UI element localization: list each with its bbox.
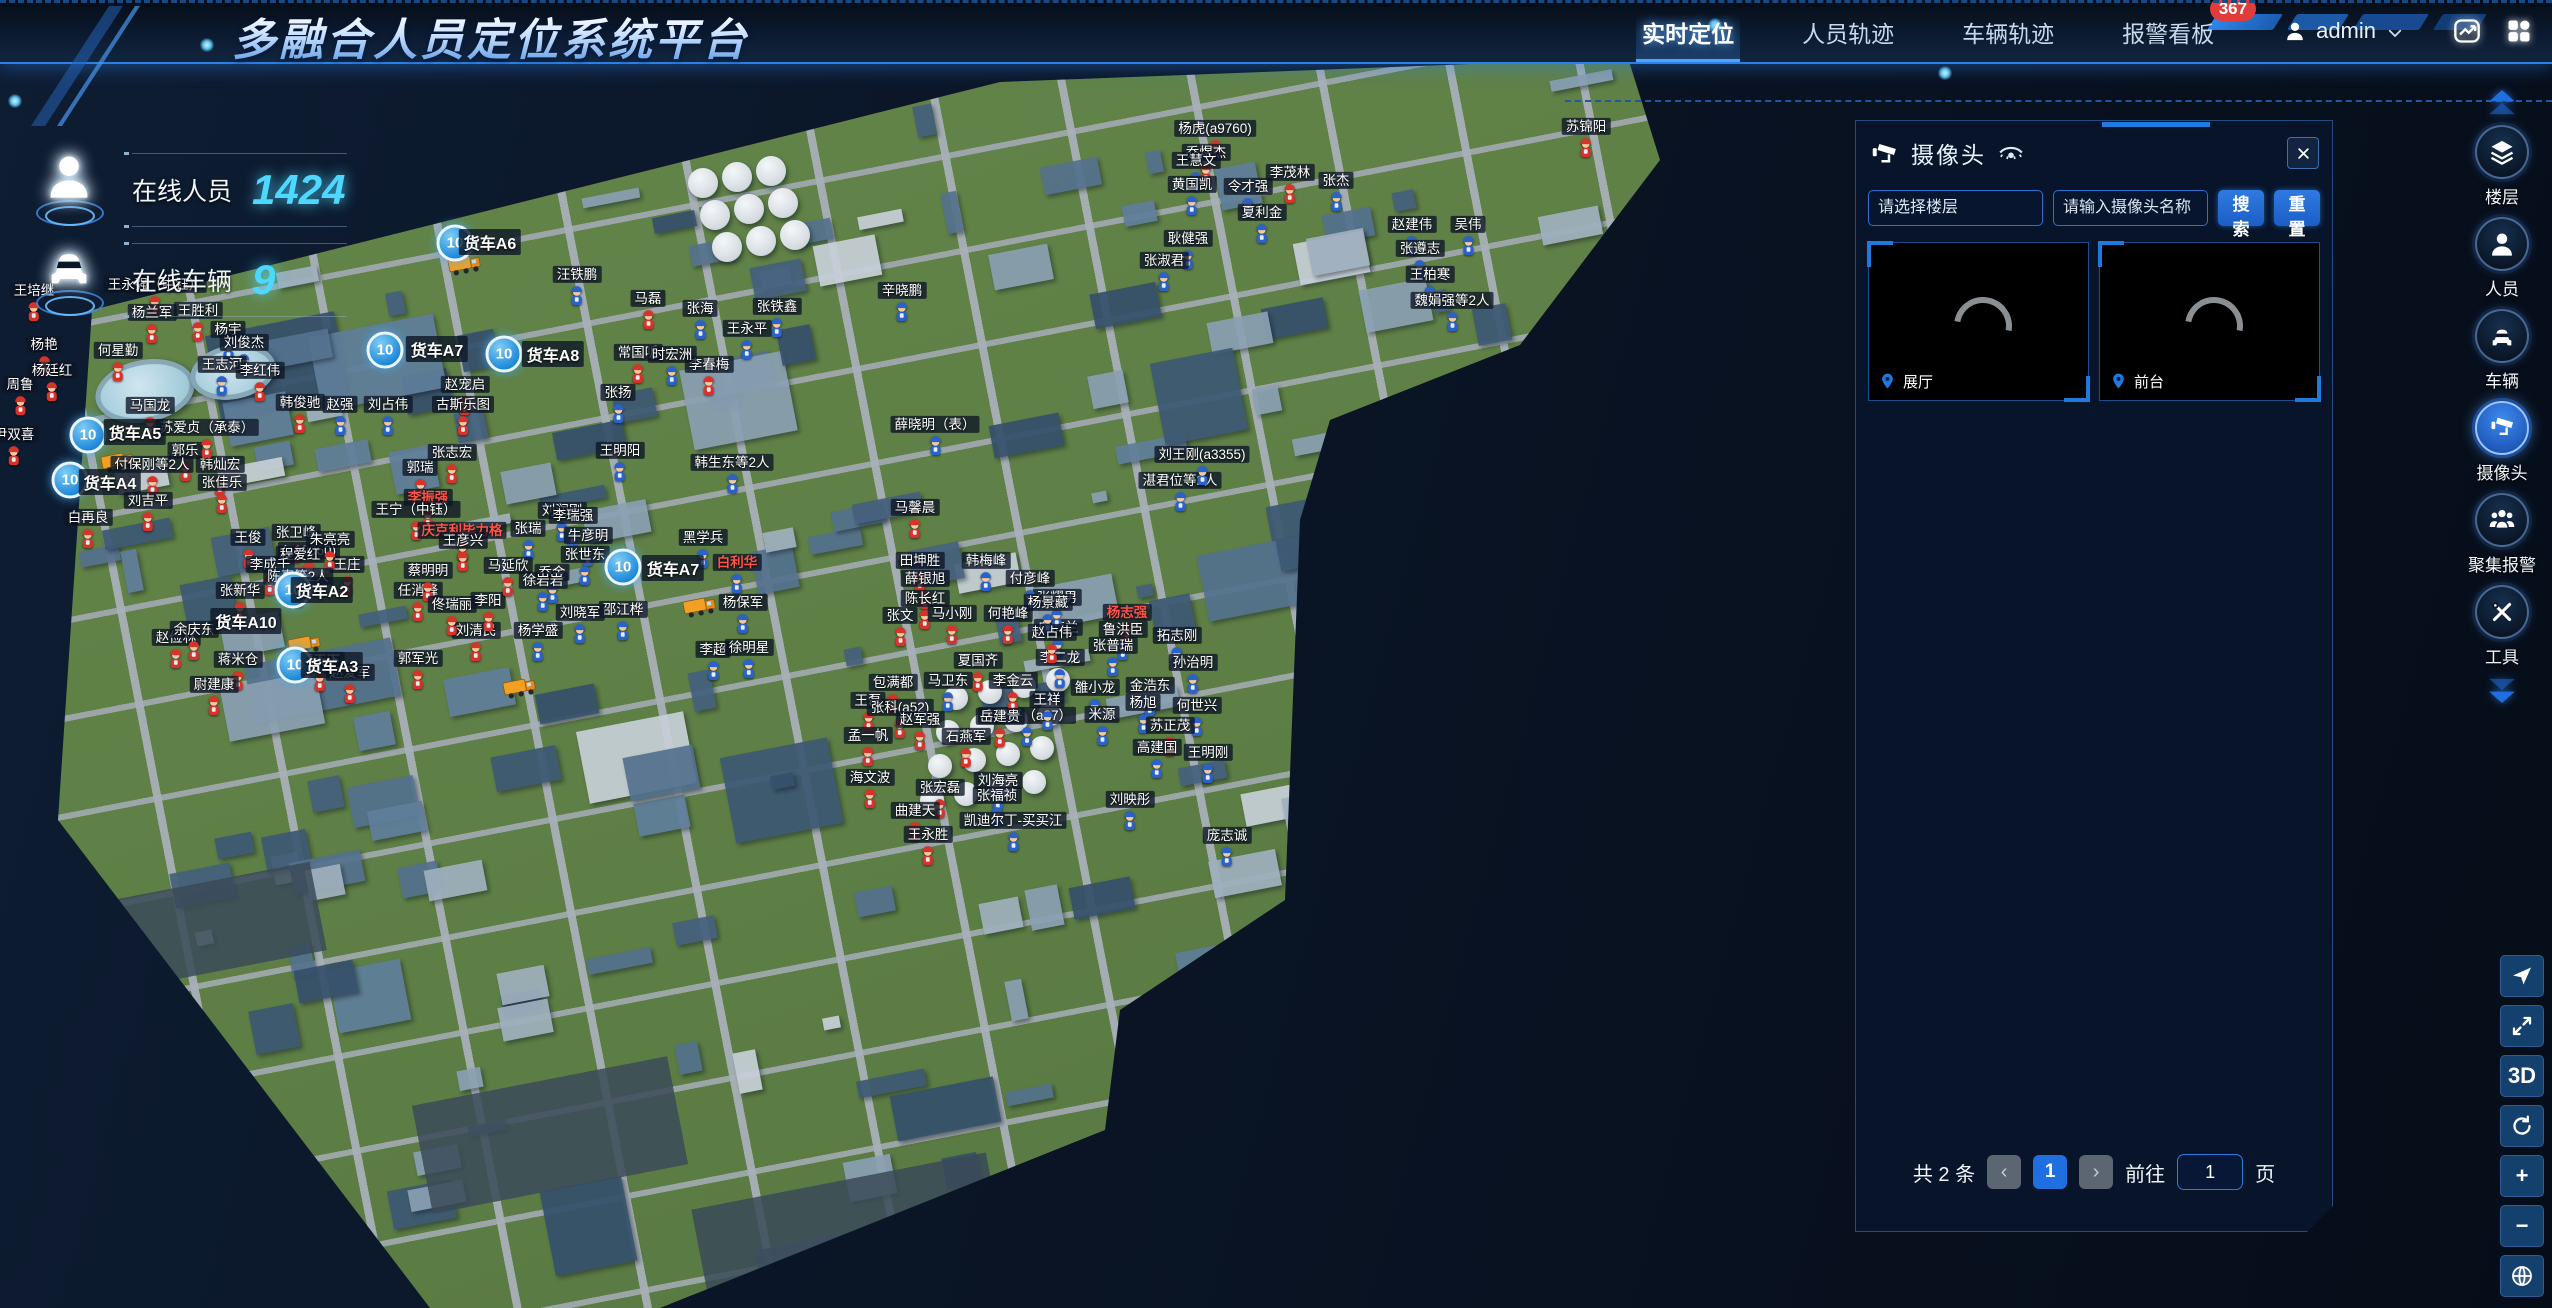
prev-page-button[interactable]: ‹ xyxy=(1987,1155,2021,1189)
truck-label[interactable]: 货车A7 xyxy=(642,555,704,581)
person-marker[interactable]: 白利华 xyxy=(713,554,762,594)
loading-spinner-icon xyxy=(2173,285,2254,366)
truck-label[interactable]: 货车A2 xyxy=(291,577,353,603)
current-page[interactable]: 1 xyxy=(2033,1155,2067,1189)
person-marker[interactable]: 尹双喜 xyxy=(0,426,38,466)
person-marker[interactable]: 苏爱贞（承泰） xyxy=(156,419,259,459)
person-name-label: 王柏寒 xyxy=(1406,266,1455,283)
person-marker[interactable]: 王永胜 xyxy=(904,826,953,866)
person-marker[interactable]: 刘占伟 xyxy=(364,396,413,436)
person-name-label: 刘占伟 xyxy=(364,396,413,413)
person-name-label: 马国龙 xyxy=(126,397,175,414)
sidebar-item-person[interactable]: 人员 xyxy=(2468,217,2536,300)
person-marker[interactable]: 何星勤 xyxy=(94,342,143,382)
goto-label: 前往 xyxy=(2125,1158,2165,1187)
person-name-label: 刘映彤 xyxy=(1106,791,1155,808)
person-name-label: 汪铁鹏 xyxy=(553,266,602,283)
person-name-label: 徐明星 xyxy=(725,639,774,656)
glow-dot xyxy=(1938,66,1952,80)
building xyxy=(1549,69,1613,92)
person-name-label: 韩梅峰 xyxy=(962,552,1011,569)
person-marker[interactable]: 赵占伟 xyxy=(1028,624,1077,664)
camera-search-row: 搜索 重置 xyxy=(1855,180,2333,230)
nav-tabs: 实时定位人员轨迹车辆轨迹报警看板367 xyxy=(1636,1,2220,62)
person-name-label: 令才强 xyxy=(1224,178,1273,195)
storage-tank xyxy=(1022,770,1046,794)
person-marker[interactable]: 张佳乐 xyxy=(198,474,247,514)
building xyxy=(675,1041,703,1075)
person-name-label: 王明刚 xyxy=(1184,744,1233,761)
person-name-label: 马磊 xyxy=(631,290,666,307)
person-name-label: 拓志刚 xyxy=(1153,627,1202,644)
person-name-label: 曲建天 xyxy=(891,802,940,819)
scroll-up-icon[interactable] xyxy=(2485,90,2519,116)
person-name-label: 何艳峰 xyxy=(984,605,1033,622)
person-name-label: 赵强 xyxy=(323,396,358,413)
person-marker[interactable]: 米源 xyxy=(1085,706,1120,746)
sidebar-item-label: 车辆 xyxy=(2485,367,2519,392)
person-name-label: 白再良 xyxy=(64,509,113,526)
camera-panel-header: 摄像头 xyxy=(1855,120,2333,180)
sidebar-item-label: 工具 xyxy=(2485,643,2519,668)
globe-button[interactable] xyxy=(2500,1255,2544,1297)
building xyxy=(1092,491,1109,504)
building xyxy=(1538,205,1603,245)
person-icon xyxy=(30,148,108,232)
person-marker[interactable]: 王永平 xyxy=(723,320,772,360)
floor-select-input[interactable] xyxy=(1868,190,2043,226)
orbit-button[interactable] xyxy=(2500,1105,2544,1147)
person-marker[interactable]: 朱亮亮 xyxy=(306,531,355,571)
building xyxy=(1175,941,1243,990)
person-name-label: 王明阳 xyxy=(596,442,645,459)
sidebar-item-label: 摄像头 xyxy=(2477,459,2528,484)
building xyxy=(1121,200,1158,227)
camera-feed-name: 前台 xyxy=(2134,371,2164,392)
person-marker[interactable]: 凯迪尔丁-买买江 xyxy=(960,812,1067,852)
page-unit-label: 页 xyxy=(2255,1158,2275,1187)
person-marker[interactable]: 韩俊驰 xyxy=(276,394,325,434)
person-marker[interactable]: 魏娟强等2人 xyxy=(1410,292,1493,332)
person-marker[interactable]: 徐明星 xyxy=(725,639,774,679)
dashboard-chart-button[interactable] xyxy=(2448,15,2486,47)
person-name-label: 李金云 xyxy=(989,672,1038,689)
goto-page-input[interactable] xyxy=(2177,1154,2243,1190)
person-name-label: 马馨晨 xyxy=(891,499,940,516)
search-button[interactable]: 搜索 xyxy=(2218,190,2264,226)
person-name-label: 刘俊杰 xyxy=(220,334,269,351)
person-name-label: 古斯乐图 xyxy=(432,396,494,413)
truck-label[interactable]: 货车A10 xyxy=(210,608,281,634)
building xyxy=(912,103,936,137)
alarm-count-badge: 367 xyxy=(2210,0,2256,21)
person-name-label: 赵建伟 xyxy=(1388,216,1437,233)
orbit-icon xyxy=(2510,1114,2534,1138)
person-name-label: 付彦峰 xyxy=(1006,570,1055,587)
location-pin-icon xyxy=(2110,370,2127,392)
online-personnel-stat: 在线人员 1424 xyxy=(30,148,347,232)
storage-tank xyxy=(780,220,810,250)
person-name-label: 张铁鑫 xyxy=(753,298,802,315)
person-marker[interactable]: 王明刚 xyxy=(1184,744,1233,784)
pagination-total: 共 2 条 xyxy=(1913,1158,1975,1187)
cluster-marker[interactable]: 10 xyxy=(605,549,642,586)
person-marker[interactable]: 庞志诚 xyxy=(1203,827,1252,867)
storage-tank xyxy=(688,168,718,198)
person-marker[interactable]: 王明阳 xyxy=(596,442,645,482)
truck-label[interactable]: 货车A3 xyxy=(301,652,363,678)
glow-dot xyxy=(8,94,22,108)
building xyxy=(733,1049,763,1093)
person-marker[interactable]: 吴伟 xyxy=(1451,216,1486,256)
person-marker[interactable]: 刘吉平 xyxy=(124,492,173,532)
building xyxy=(314,439,372,472)
person-name-label: 米源 xyxy=(1085,706,1120,723)
person-marker[interactable]: 张杰 xyxy=(1319,172,1354,212)
person-marker[interactable]: 高建国 xyxy=(1133,739,1182,779)
truck-label[interactable]: 货车A4 xyxy=(79,469,141,495)
person-name-label: 杨艳 xyxy=(27,336,62,353)
building xyxy=(854,885,897,917)
person-name-label: 薛晓明（表） xyxy=(891,416,980,433)
person-name-label: 夏国齐 xyxy=(954,652,1003,669)
person-marker[interactable]: 赵强 xyxy=(323,396,358,436)
person-name-label: 朱亮亮 xyxy=(306,531,355,548)
pier xyxy=(412,1056,688,1214)
person-name-label: 刘晓军 xyxy=(556,604,605,621)
camera-name-input[interactable] xyxy=(2053,190,2208,226)
building xyxy=(1024,884,1064,931)
sidebar-item-camera[interactable]: 摄像头 xyxy=(2468,401,2536,484)
view-3d-button[interactable]: 3D xyxy=(2500,1055,2544,1097)
person-name-label: 李红伟 xyxy=(236,362,285,379)
compass-button[interactable] xyxy=(2500,955,2544,997)
person-name-label: 王慧文 xyxy=(1172,152,1221,169)
person-name-label: 苏爱贞（承泰） xyxy=(156,419,259,436)
person-name-label: 王宁（中钰） xyxy=(372,501,461,518)
sidebar-item-label: 楼层 xyxy=(2485,183,2519,208)
building xyxy=(749,258,807,301)
person-name-label: 张福祯 xyxy=(973,787,1022,804)
building xyxy=(582,187,641,208)
storage-tank xyxy=(746,226,776,256)
truck-label[interactable]: 货车A8 xyxy=(522,341,584,367)
person-marker[interactable]: 李阳 xyxy=(471,592,506,632)
person-marker[interactable]: 张淑君 xyxy=(1140,252,1189,292)
eye-icon[interactable] xyxy=(1998,146,2024,164)
location-pin-icon xyxy=(1879,370,1896,392)
building xyxy=(456,1067,483,1091)
person-name-label: 孙治明 xyxy=(1169,654,1218,671)
person-name-label: 杨旭 xyxy=(1126,694,1161,711)
loading-spinner-icon xyxy=(1942,285,2023,366)
building xyxy=(353,711,396,751)
building xyxy=(535,683,599,723)
page-title: 多融合人员定位系统平台 xyxy=(232,4,749,68)
person-marker[interactable]: 海文波 xyxy=(846,769,895,809)
building xyxy=(979,897,1025,935)
storage-tank xyxy=(712,232,742,262)
person-marker[interactable]: 苏锦阳 xyxy=(1562,118,1611,158)
person-name-label: 夏利金 xyxy=(1238,204,1287,221)
person-name-label: 邵江桦 xyxy=(599,601,648,618)
person-name-label: 辛晓鹏 xyxy=(878,282,927,299)
cluster-marker[interactable]: 10 xyxy=(367,332,404,369)
user-name: admin xyxy=(2316,18,2376,44)
person-marker[interactable]: 夏利金 xyxy=(1238,204,1287,244)
building xyxy=(822,1016,841,1031)
sidebar-item-car[interactable]: 车辆 xyxy=(2468,309,2536,392)
building xyxy=(214,832,254,860)
person-name-label: 何星勤 xyxy=(94,342,143,359)
person-marker[interactable]: 张世东 xyxy=(561,546,610,586)
building xyxy=(490,745,561,791)
truck-label[interactable]: 货车A5 xyxy=(104,419,166,445)
person-marker[interactable]: 马小刚 xyxy=(928,605,977,645)
camera-panel: 摄像头 搜索 重置 展厅 前台 共 2 条 xyxy=(1855,120,2333,1232)
person-marker[interactable]: 韩梅峰 xyxy=(962,552,1011,592)
person-name-label: 马小刚 xyxy=(928,605,977,622)
sidebar-item-layers[interactable]: 楼层 xyxy=(2468,125,2536,208)
person-marker[interactable]: 张文 xyxy=(883,607,918,647)
person-name-label: 杨虎(a9760) xyxy=(1174,120,1256,137)
person-marker[interactable]: 李茂林 xyxy=(1266,164,1315,204)
person-name-label: 王永平 xyxy=(723,320,772,337)
person-marker[interactable]: 汪铁鹏 xyxy=(553,266,602,306)
building xyxy=(673,915,718,945)
person-marker[interactable]: 孟一帆 xyxy=(844,727,893,767)
building xyxy=(1240,785,1298,827)
close-icon[interactable] xyxy=(2287,137,2319,169)
sidebar-item-group-alarm[interactable]: 聚集报警 xyxy=(2468,493,2536,576)
building xyxy=(1145,150,1164,175)
person-marker[interactable]: 孙治明 xyxy=(1169,654,1218,694)
chevron-down-icon xyxy=(2386,22,2404,40)
person-marker[interactable]: 张瑞 xyxy=(511,520,546,560)
person-name-label: 郭瑞 xyxy=(403,459,438,476)
person-name-label: 王俊 xyxy=(231,529,266,546)
person-name-label: 张遵志 xyxy=(1396,240,1445,257)
person-name-label: 吴伟 xyxy=(1451,216,1486,233)
person-marker[interactable]: 刘晓军 xyxy=(556,604,605,644)
person-name-label: 时宏洲 xyxy=(648,346,697,363)
building xyxy=(652,210,697,234)
map-right-divider xyxy=(1565,100,2552,102)
person-name-label: 张世东 xyxy=(561,546,610,563)
building xyxy=(988,244,1054,290)
person-marker[interactable]: 何艳峰 xyxy=(984,605,1033,645)
person-name-label: 庞志诚 xyxy=(1203,827,1252,844)
building xyxy=(1068,877,1135,920)
person-marker[interactable]: 马馨晨 xyxy=(891,499,940,539)
person-name-label: 鲁洪臣 xyxy=(1099,621,1148,638)
person-marker[interactable]: 佟瑞丽 xyxy=(428,596,477,636)
person-marker[interactable]: 马磊 xyxy=(631,290,666,330)
building xyxy=(989,413,1065,459)
person-marker[interactable]: 白再良 xyxy=(64,509,113,549)
glow-dot xyxy=(200,38,214,52)
building xyxy=(1292,431,1341,456)
reset-button[interactable]: 重置 xyxy=(2274,190,2320,226)
person-marker[interactable]: 周鲁 xyxy=(3,376,38,416)
pagination: 共 2 条 ‹ 1 › 前往 页 xyxy=(1855,1154,2333,1190)
building xyxy=(385,291,406,317)
person-name-label: 牛彦明 xyxy=(564,527,613,544)
cluster-marker[interactable]: 10 xyxy=(70,417,107,454)
building xyxy=(121,549,144,593)
person-name-label: 黑学兵 xyxy=(679,529,728,546)
building xyxy=(1196,533,1326,621)
camera-feed-name: 展厅 xyxy=(1903,371,1933,392)
person-marker[interactable]: 王彦兴 xyxy=(439,532,488,572)
app-root: 杨虎(a9760)乔煜杰苏锦阳李茂林王慧文黄国凯令才强夏利金张杰赵建伟吴伟张遵志… xyxy=(0,0,2552,1308)
group-alarm-icon xyxy=(2475,493,2529,547)
person-name-label: 魏娟强等2人 xyxy=(1410,292,1493,309)
user-icon xyxy=(2284,20,2306,42)
building xyxy=(307,776,345,814)
stat-value: 1424 xyxy=(252,166,345,214)
nav-tab-2[interactable]: 人员轨迹 xyxy=(1796,1,1900,62)
building xyxy=(1150,347,1249,445)
person-name-label: 李瑞强 xyxy=(549,507,598,524)
person-marker[interactable]: 黄国凯 xyxy=(1168,176,1217,216)
building xyxy=(1281,788,1345,832)
person-marker[interactable]: 李金云 xyxy=(989,672,1038,712)
person-name-label: 孟一帆 xyxy=(844,727,893,744)
building xyxy=(1207,311,1274,354)
building xyxy=(1039,156,1101,195)
person-name-label: 张扬 xyxy=(601,384,636,401)
person-marker[interactable]: 刘王刚(a3355) xyxy=(1154,446,1249,486)
person-marker[interactable]: 薛晓明（表） xyxy=(891,416,980,456)
camera-feed[interactable]: 前台 xyxy=(2099,242,2320,401)
person-marker[interactable]: 赵军强 xyxy=(896,711,945,751)
fullscreen-icon xyxy=(2510,1014,2534,1038)
stat-label: 在线人员 xyxy=(132,172,232,208)
person-marker[interactable]: 辛晓鹏 xyxy=(878,282,927,322)
person-name-label: 张瑞 xyxy=(511,520,546,537)
person-marker[interactable]: 韩生东等2人 xyxy=(690,454,773,494)
camera-panel-title: 摄像头 xyxy=(1911,136,1986,170)
person-name-label: 薛银旭 xyxy=(901,570,950,587)
nav-tab-1[interactable]: 实时定位 xyxy=(1636,1,1740,62)
person-marker[interactable]: 尉建康 xyxy=(190,676,239,716)
panel-accent-bar xyxy=(2102,122,2210,127)
storage-tank xyxy=(722,162,752,192)
right-sidebar: 楼层人员车辆摄像头聚集报警工具 xyxy=(2456,90,2548,703)
person-name-label: 刘王刚(a3355) xyxy=(1154,446,1249,463)
building xyxy=(858,209,904,230)
person-marker[interactable]: 张海 xyxy=(683,300,718,340)
building xyxy=(1391,189,1416,212)
person-name-label: 苏锦阳 xyxy=(1562,118,1611,135)
camera-feeds: 展厅 前台 xyxy=(1855,230,2333,413)
cluster-marker[interactable]: 10 xyxy=(486,336,523,373)
nav-tab-3[interactable]: 车辆轨迹 xyxy=(1956,1,2060,62)
person-name-label: 张海 xyxy=(683,300,718,317)
person-name-label: 赵占伟 xyxy=(1028,624,1077,641)
building xyxy=(720,737,844,843)
person-name-label: 郭军光 xyxy=(394,650,443,667)
person-name-label: 徐岩岩 xyxy=(519,572,568,589)
person-name-label: 何世兴 xyxy=(1173,697,1222,714)
sidebar-item-label: 聚集报警 xyxy=(2468,551,2536,576)
person-marker[interactable]: 郭军光 xyxy=(394,650,443,690)
person-marker[interactable]: 时宏洲 xyxy=(648,346,697,386)
building xyxy=(813,234,882,287)
apps-grid-button[interactable] xyxy=(2500,15,2538,47)
person-name-label: 韩俊驰 xyxy=(276,394,325,411)
app-header: 多融合人员定位系统平台 实时定位人员轨迹车辆轨迹报警看板367 admin xyxy=(0,0,2552,64)
person-name-label: 耿健强 xyxy=(1164,230,1213,247)
person-marker[interactable]: 古斯乐图 xyxy=(432,396,494,436)
person-name-label: 周鲁 xyxy=(3,376,38,393)
person-name-label: 张宏磊 xyxy=(916,779,965,796)
person-name-label: 杨保军 xyxy=(719,594,768,611)
sidebar-item-label: 人员 xyxy=(2485,275,2519,300)
person-name-label: 岳建贵 xyxy=(976,708,1025,725)
fullscreen-button[interactable] xyxy=(2500,1005,2544,1047)
user-menu[interactable]: admin xyxy=(2284,18,2404,44)
camera-feed[interactable]: 展厅 xyxy=(1868,242,2089,401)
storage-tank xyxy=(756,156,786,186)
person-marker[interactable]: 刘映彤 xyxy=(1106,791,1155,831)
online-vehicles-stat: 在线车辆 9 xyxy=(30,238,347,322)
person-name-label: 黄国凯 xyxy=(1168,176,1217,193)
building xyxy=(1005,979,1029,1022)
storage-tank xyxy=(700,200,730,230)
car-icon xyxy=(30,238,108,322)
truck-label[interactable]: 货车A7 xyxy=(406,336,468,362)
storage-tank xyxy=(734,194,764,224)
truck-label[interactable]: 货车A6 xyxy=(459,229,521,255)
building xyxy=(940,191,964,234)
person-icon xyxy=(2475,217,2529,271)
sidebar-item-tools[interactable]: 工具 xyxy=(2468,585,2536,668)
building xyxy=(586,947,653,975)
person-name-label: 蒋米仓 xyxy=(214,651,263,668)
person-name-label: 尉建康 xyxy=(190,676,239,693)
person-name-label: 张新华 xyxy=(216,582,265,599)
compass-icon xyxy=(2510,964,2534,988)
next-page-button[interactable]: › xyxy=(2079,1155,2113,1189)
person-marker[interactable]: 邵江桦 xyxy=(599,601,648,641)
person-name-label: 杨志强 xyxy=(1103,604,1152,621)
person-name-label: 王彦兴 xyxy=(439,532,488,549)
zoom-out-button[interactable]: − xyxy=(2500,1205,2544,1247)
tools-icon xyxy=(2475,585,2529,639)
stat-label: 在线车辆 xyxy=(132,262,232,298)
camera-icon xyxy=(1869,140,1899,166)
person-name-label: 雒小龙 xyxy=(1071,679,1120,696)
person-marker[interactable]: 杨保军 xyxy=(719,594,768,634)
person-name-label: 佟瑞丽 xyxy=(428,596,477,613)
person-name-label: 张佳乐 xyxy=(198,474,247,491)
person-marker[interactable]: 岳建贵 xyxy=(976,708,1025,748)
building xyxy=(633,794,691,837)
person-name-label: 张普瑞 xyxy=(1089,637,1138,654)
person-marker[interactable]: 张普瑞 xyxy=(1089,637,1138,677)
person-name-label: 王永胜 xyxy=(904,826,953,843)
nav-tab-4[interactable]: 报警看板367 xyxy=(2116,1,2220,62)
person-name-label: 高建国 xyxy=(1133,739,1182,756)
layers-icon xyxy=(2475,125,2529,179)
scroll-down-icon[interactable] xyxy=(2485,677,2519,703)
person-name-label: 凯迪尔丁-买买江 xyxy=(960,812,1067,829)
building xyxy=(1136,583,1154,598)
person-marker[interactable]: 张扬 xyxy=(601,384,636,424)
zoom-in-button[interactable]: + xyxy=(2500,1155,2544,1197)
